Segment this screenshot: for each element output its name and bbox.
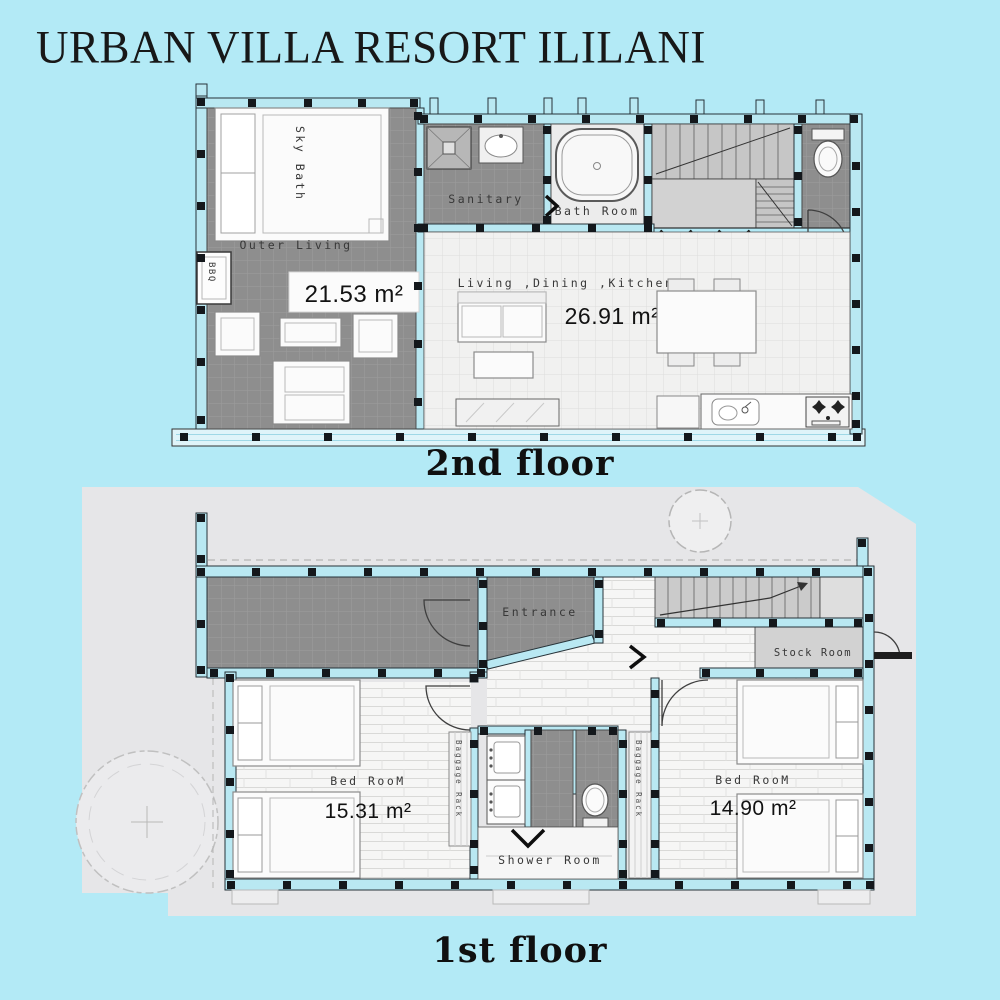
exterior-step [493,890,589,904]
floor-plans-drawing: Sky Bath BBQ Outer Living 21.53 m² Sanit… [0,0,1000,1000]
label-entrance: Entrance [502,605,577,619]
label-bedroom-right-area: 14.90 m² [710,797,797,820]
label-bedroom-left: Bed RooM [330,774,405,788]
floor-plan-page: { "title": "URBAN VILLA RESORT ILILANI",… [0,0,1000,1000]
outdoor-armchair [353,314,398,358]
label-bedroom-right: Bed RooM [715,773,790,787]
exterior-step [232,890,278,904]
toilet-2f [812,129,844,177]
wash-basin [487,780,525,824]
label-bbq: BBQ [206,262,216,283]
deck-floor [207,577,478,668]
shower-stall-floor [531,730,573,827]
bed [233,680,360,766]
dining-table [657,279,756,366]
ldk-side-table [474,352,533,378]
label-bath-room: Bath Room [555,204,640,218]
stairs-1f [655,577,820,622]
second-floor-plan: Sky Bath BBQ Outer Living 21.53 m² Sanit… [172,84,865,446]
first-floor-plan: Entrance Stock Room Shower Room Baggage … [76,487,916,916]
shower-stall [427,127,471,169]
ldk-sofa [458,292,546,342]
wash-basin-2f [479,127,523,163]
bathtub [556,129,638,201]
stair-closet [820,577,863,622]
label-stock-room: Stock Room [774,647,852,659]
outdoor-sofa [273,361,350,424]
label-sanitary: Sanitary [448,192,523,206]
label-sky-bath: Sky Bath [293,126,307,201]
wash-basin [487,736,525,780]
staircase-2f [652,124,794,228]
tree-small [669,490,731,552]
label-shower-room: Shower Room [498,853,602,867]
label-bedroom-left-area: 15.31 m² [325,800,412,823]
label-ldk-area: 26.91 m² [565,303,660,329]
outdoor-coffee-table [280,318,341,347]
tree-large [76,751,218,893]
outdoor-armchair [215,312,260,356]
stove [806,397,849,427]
toilet-1f [582,784,608,827]
label-baggage-rack-left: Baggage Rack [454,740,463,818]
label-outer-living-area: 21.53 m² [305,281,404,308]
label-baggage-rack-right: Baggage Rack [634,740,643,818]
exterior-step [818,890,870,904]
label-outer-living: Outer Living [239,238,352,252]
stock-room-step [874,652,912,659]
tv-board [456,399,559,426]
bed [737,680,863,764]
label-ldk: Living ,Dining ,Kitchen [458,276,675,290]
